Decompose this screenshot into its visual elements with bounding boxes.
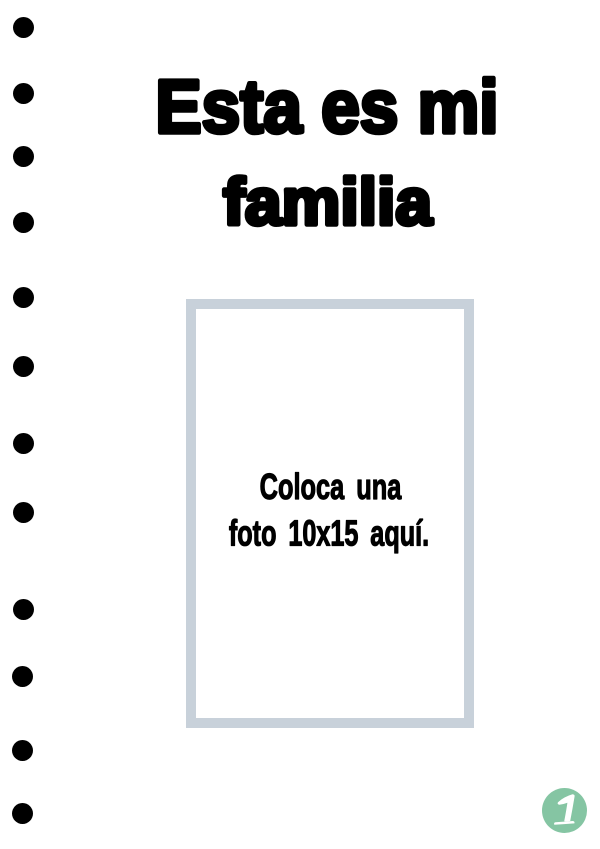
svg-text:foto 10x15 aquí.: foto 10x15 aquí. — [229, 513, 429, 554]
svg-text:familia: familia — [223, 165, 433, 239]
svg-text:Esta es mi: Esta es mi — [155, 66, 498, 149]
svg-text:Coloca una: Coloca una — [260, 467, 402, 507]
